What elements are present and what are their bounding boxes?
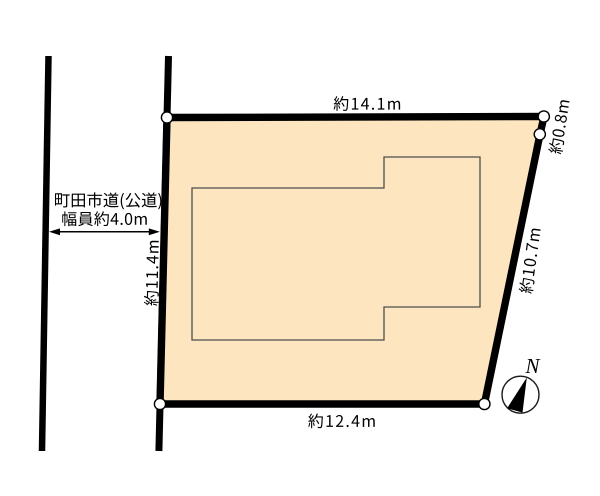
svg-text:N: N bbox=[524, 354, 540, 378]
